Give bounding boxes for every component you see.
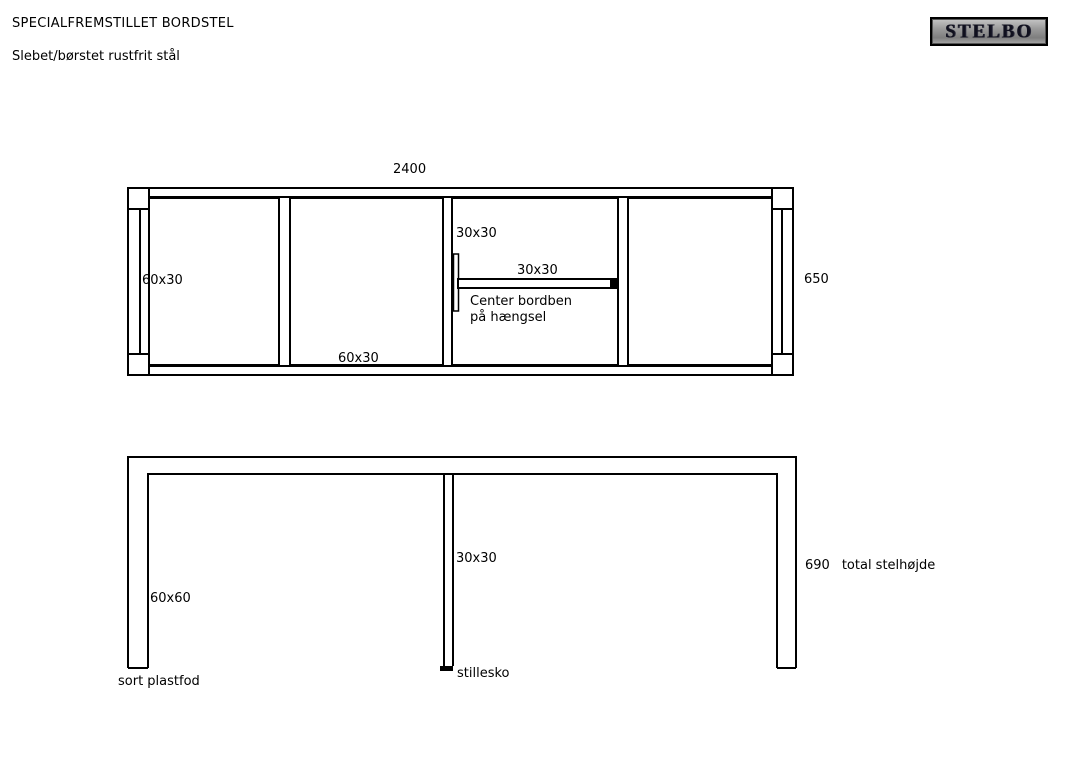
technical-drawing — [0, 0, 1067, 778]
corner-leg-top-right — [772, 188, 793, 209]
corner-leg-top-left — [128, 188, 149, 209]
corner-leg-bottom-left — [128, 354, 149, 375]
drawing-sheet: SPECIALFREMSTILLET BORDSTEL Slebet/børst… — [0, 0, 1067, 778]
panel-opening-4 — [628, 198, 772, 365]
adjustable-glide-mark — [440, 666, 453, 671]
hinge-member-dim: 30x30 — [456, 226, 497, 241]
center-leg-note-line1: Center bordben — [470, 294, 572, 310]
side-member-dim: 60x30 — [142, 273, 183, 288]
center-bar-dim: 30x30 — [517, 263, 558, 278]
center-leg-dim: 30x30 — [456, 551, 497, 566]
top-view-depth-dim: 650 — [804, 272, 829, 287]
height-dim: 690 total stelhøjde — [805, 558, 935, 573]
center-leg-note-line2: på hængsel — [470, 310, 572, 326]
hinge-knuckle — [611, 278, 617, 289]
foot-label: sort plastfod — [118, 674, 200, 689]
corner-leg-bottom-right — [772, 354, 793, 375]
glide-label: stillesko — [457, 666, 510, 681]
leg-dim: 60x60 — [150, 591, 191, 606]
center-leg-note: Center bordben på hængsel — [470, 294, 572, 326]
height-dim-label: total stelhøjde — [842, 558, 935, 573]
height-dim-value: 690 — [805, 558, 830, 573]
top-view-drawing — [128, 188, 793, 375]
panel-opening-2 — [290, 198, 443, 365]
top-view-length-dim: 2400 — [393, 162, 426, 177]
cross-member-dim: 60x30 — [338, 351, 379, 366]
folded-center-leg-bar — [458, 279, 611, 288]
frame-inner-outline — [148, 474, 777, 668]
